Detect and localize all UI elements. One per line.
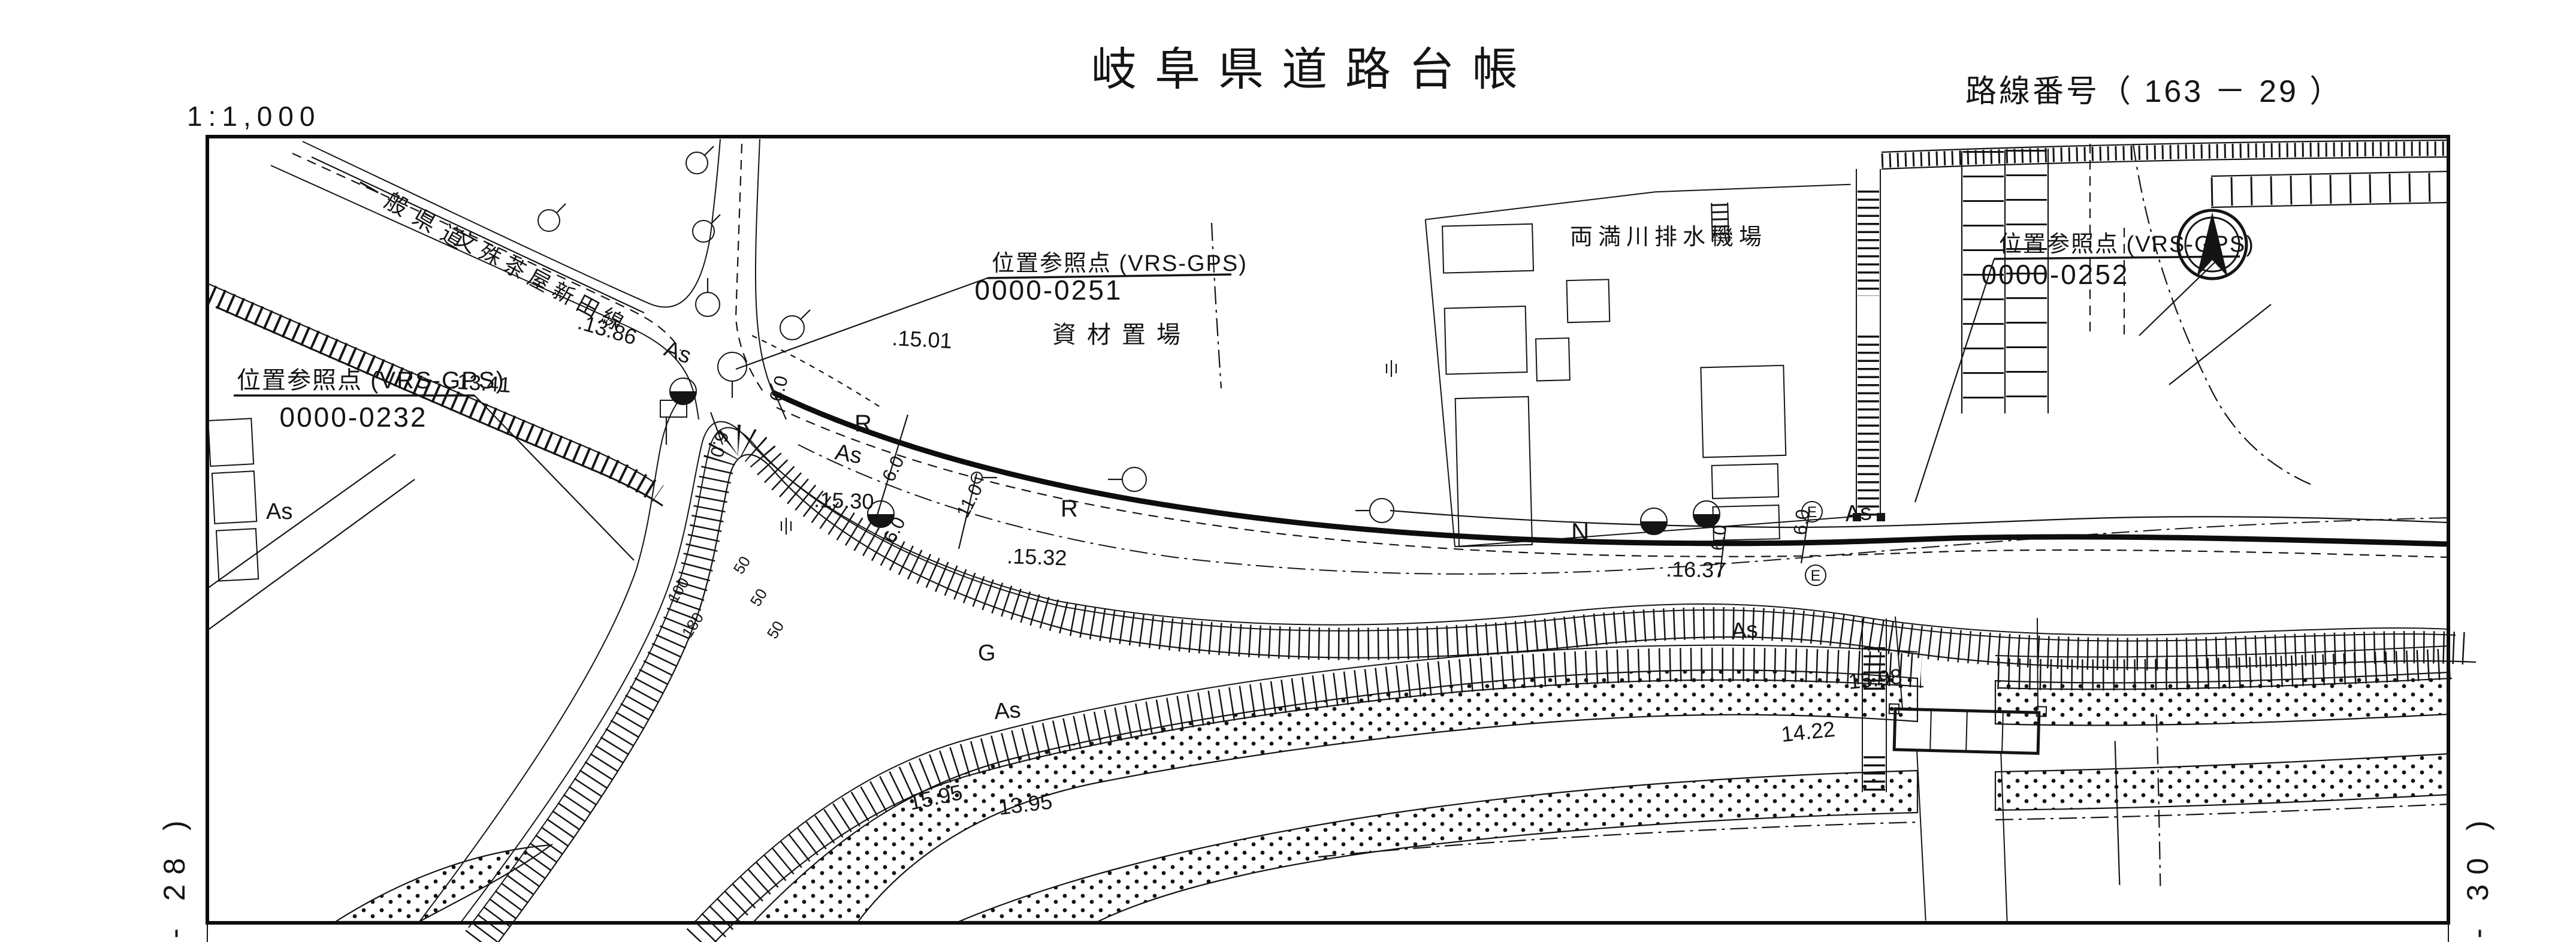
river-bank-bands bbox=[336, 422, 2476, 942]
reference-point-id: 0000-0251 bbox=[975, 274, 1123, 306]
lot-dimension: 50 bbox=[747, 585, 771, 609]
sign-structure bbox=[660, 400, 687, 445]
utility-label-e: E bbox=[1811, 567, 1821, 584]
dimension-label: 6.0 bbox=[1707, 524, 1731, 552]
road-south-edge bbox=[461, 422, 2448, 922]
manhole bbox=[718, 352, 747, 398]
building bbox=[1701, 366, 1786, 458]
spot-elevation: .15.30 bbox=[814, 487, 874, 514]
place-pump-station: 両満川排水機場 bbox=[1570, 225, 1767, 250]
road-ledger-sheet: 1:1,000 岐阜県道路台帳 路線番号（ 163 － 29 ） - 28 ) … bbox=[0, 0, 2576, 942]
north-leg-road bbox=[736, 139, 881, 407]
dimension-label: 11.0 bbox=[952, 481, 987, 521]
building bbox=[212, 471, 256, 524]
building bbox=[1536, 338, 1570, 381]
surface-label-as: As bbox=[266, 499, 292, 524]
route-number-label: 路線番号（ 163 － 29 ） bbox=[1965, 74, 2343, 109]
building bbox=[208, 418, 253, 466]
building bbox=[1445, 306, 1527, 374]
sluice-gate bbox=[1877, 513, 1885, 521]
dimension-ticks bbox=[711, 384, 1810, 576]
curve-label-r: R bbox=[854, 410, 872, 437]
spot-elevation: .16.37 bbox=[1666, 557, 1726, 582]
spot-elevation: .13.41 bbox=[450, 369, 512, 397]
spot-elevation: .15.32 bbox=[1007, 544, 1067, 570]
building bbox=[1567, 279, 1610, 322]
surface-label-as: As bbox=[993, 698, 1022, 724]
reference-point-callout: 位置参照点 (VRS-GPS) 0000-0251 bbox=[736, 251, 1248, 369]
main-road-north-edge bbox=[773, 393, 2448, 544]
adjacent-sheet-left: - 28 ) bbox=[158, 811, 191, 938]
surface-label-as: As bbox=[661, 336, 694, 369]
utility-poles bbox=[538, 146, 1394, 523]
reference-point-label: 位置参照点 (VRS-GPS) bbox=[1999, 232, 2255, 257]
spot-elevation: 14.22 bbox=[1780, 717, 1837, 747]
lot-dimension: 50 bbox=[730, 553, 754, 577]
diagonal-road bbox=[206, 139, 720, 506]
leader-line bbox=[736, 278, 987, 369]
reference-point-label: 位置参照点 (VRS-GPS) bbox=[992, 251, 1248, 276]
surface-label-as: As bbox=[1731, 617, 1759, 644]
surface-label-as: As bbox=[1844, 500, 1873, 527]
station-label-n: N bbox=[1571, 518, 1589, 546]
lot-dimension-labels: 50 50 50 100 180 bbox=[664, 553, 788, 642]
leader-line bbox=[1915, 259, 1994, 502]
parcel-boundary bbox=[1212, 223, 1221, 388]
reference-point-id: 0000-0252 bbox=[1982, 259, 2130, 290]
building bbox=[1712, 464, 1778, 499]
reference-point-id: 0000-0232 bbox=[280, 401, 428, 433]
dimension-label: 6.0 bbox=[1789, 508, 1813, 536]
map-canvas: 1:1,000 岐阜県道路台帳 路線番号（ 163 － 29 ） - 28 ) … bbox=[0, 0, 2576, 942]
sheet-title: 岐阜県道路台帳 bbox=[1091, 44, 1536, 95]
lot-dimension: 100 bbox=[664, 574, 693, 606]
building bbox=[1442, 224, 1533, 273]
surface-label-g: G bbox=[978, 641, 996, 666]
lot-dimension: 50 bbox=[763, 618, 788, 642]
parcel-boundary bbox=[207, 454, 415, 630]
building bbox=[216, 529, 258, 581]
building bbox=[1455, 397, 1532, 547]
surface-label-as: As bbox=[833, 440, 863, 469]
reference-point-callout: 位置参照点 (VRS-GPS) 0000-0232 bbox=[234, 367, 634, 560]
place-material-yard: 資材置場 bbox=[1052, 322, 1191, 348]
top-right-parcels bbox=[1882, 140, 2448, 485]
adjacent-sheet-right: - 30 ) bbox=[2461, 811, 2495, 938]
spot-elevation: .15.01 bbox=[892, 325, 953, 353]
curve-label-r: R bbox=[1061, 496, 1078, 522]
map-scale: 1:1,000 bbox=[187, 101, 321, 132]
river-stipple-band bbox=[1995, 672, 2448, 725]
river-stipple-band bbox=[1995, 754, 2448, 810]
